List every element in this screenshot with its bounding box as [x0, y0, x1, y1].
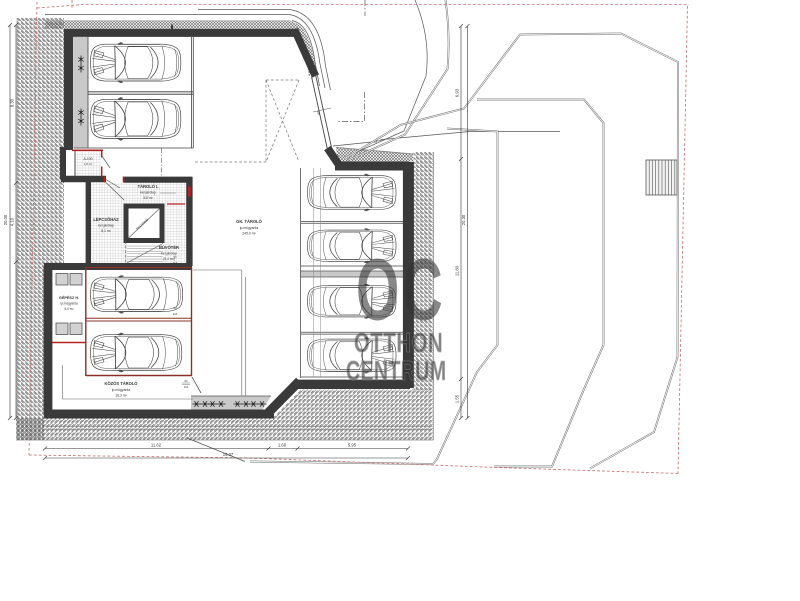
svg-text:1,8 m²: 1,8 m²	[84, 162, 93, 166]
svg-text:ip.mügyanta: ip.mügyanta	[112, 388, 131, 392]
svg-text:8.30: 8.30	[10, 98, 15, 107]
svg-text:ker.járólap: ker.járólap	[140, 191, 156, 195]
svg-text:210: 210	[184, 385, 189, 389]
svg-text:210: 210	[173, 312, 178, 316]
svg-text:19.07: 19.07	[223, 452, 234, 457]
svg-text:LÉPCSŐHÁZ: LÉPCSŐHÁZ	[93, 217, 119, 222]
svg-text:5.95: 5.95	[348, 443, 357, 448]
svg-text:A-100: A-100	[83, 157, 92, 161]
svg-text:6,0 m²: 6,0 m²	[64, 307, 73, 311]
svg-text:ip.mügyanta: ip.mügyanta	[60, 302, 78, 306]
svg-text:BÚVÓTÉR: BÚVÓTÉR	[159, 245, 179, 250]
svg-text:1.55: 1.55	[455, 394, 460, 403]
svg-text:GK. TÁROLÓ: GK. TÁROLÓ	[236, 219, 263, 224]
svg-text:TÁROLÓ I.: TÁROLÓ I.	[138, 184, 159, 189]
svg-text:20.30: 20.30	[461, 214, 466, 225]
svg-text:ker.járólap: ker.járólap	[98, 224, 114, 228]
svg-text:3,8 m²: 3,8 m²	[143, 196, 153, 200]
svg-text:8,1 m²: 8,1 m²	[101, 229, 111, 233]
svg-text:OTTHON: OTTHON	[354, 328, 443, 359]
svg-text:20.00: 20.00	[3, 214, 8, 225]
svg-text:ker.járólap: ker.járólap	[161, 252, 177, 256]
svg-text:11.62: 11.62	[151, 443, 162, 448]
svg-text:6.93: 6.93	[455, 88, 460, 97]
svg-text:GÉPÉSZ H.: GÉPÉSZ H.	[59, 295, 79, 300]
svg-text:KÖZÖS TÁROLÓ: KÖZÖS TÁROLÓ	[105, 381, 139, 386]
svg-text:16,3 m²: 16,3 m²	[115, 394, 127, 398]
svg-text:210: 210	[173, 261, 178, 265]
svg-text:11.80: 11.80	[455, 265, 460, 276]
svg-text:4.10: 4.10	[10, 217, 15, 226]
svg-text:ip.mügyanta: ip.mügyanta	[240, 226, 259, 230]
svg-text:CENTRUM: CENTRUM	[346, 356, 446, 387]
svg-text:245,0 m²: 245,0 m²	[242, 232, 256, 236]
svg-text:OC: OC	[356, 242, 446, 338]
svg-text:1.60: 1.60	[278, 443, 287, 448]
